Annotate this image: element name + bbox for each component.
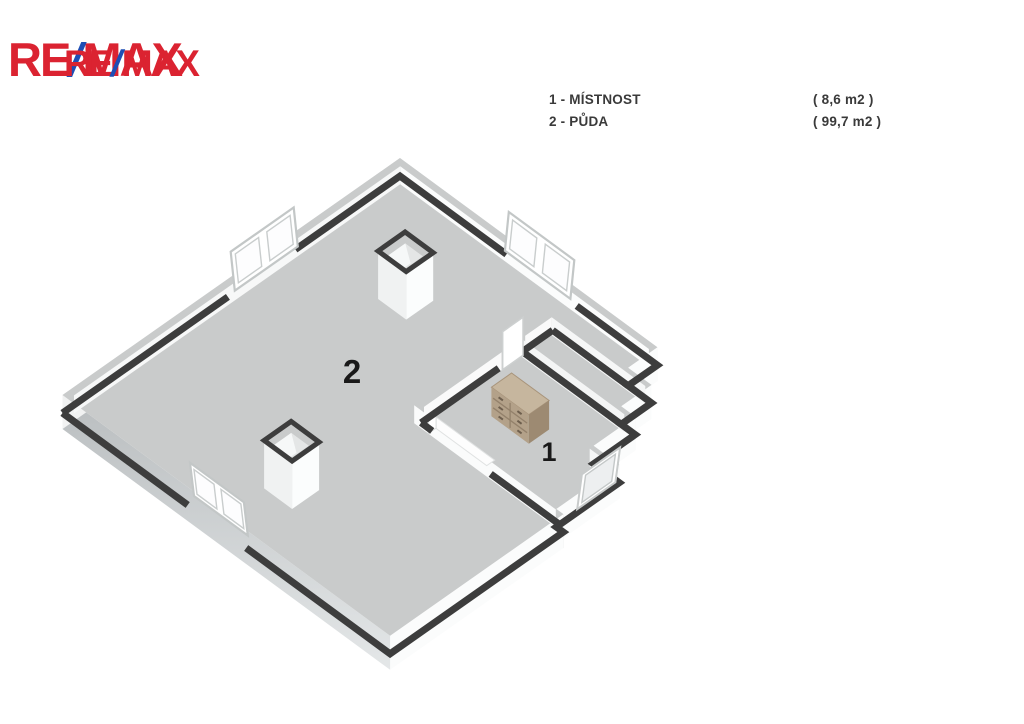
logo-re: RE: [64, 43, 111, 84]
logo-re: RE: [8, 33, 69, 86]
legend-area: ( 99,7 m2 ): [813, 114, 881, 129]
legend-row-room-2: 2 - PŮDA ( 99,7 m2 ): [549, 114, 909, 136]
remax-logo: RE/MAX RE/MAX: [0, 0, 300, 110]
logo-max: MAX: [122, 43, 198, 84]
room-legend: 1 - MÍSTNOST ( 8,6 m2 ) 2 - PŮDA ( 99,7 …: [549, 92, 909, 136]
legend-area: ( 8,6 m2 ): [813, 92, 874, 107]
room-label-1: 1: [541, 437, 556, 467]
legend-label: 1 - MÍSTNOST: [549, 92, 641, 107]
room-label-2: 2: [343, 353, 361, 390]
remax-wordmark-overlay: RE/MAX: [64, 45, 198, 82]
floor: [63, 158, 658, 636]
legend-row-room-1: 1 - MÍSTNOST ( 8,6 m2 ): [549, 92, 909, 114]
legend-label: 2 - PŮDA: [549, 114, 608, 129]
